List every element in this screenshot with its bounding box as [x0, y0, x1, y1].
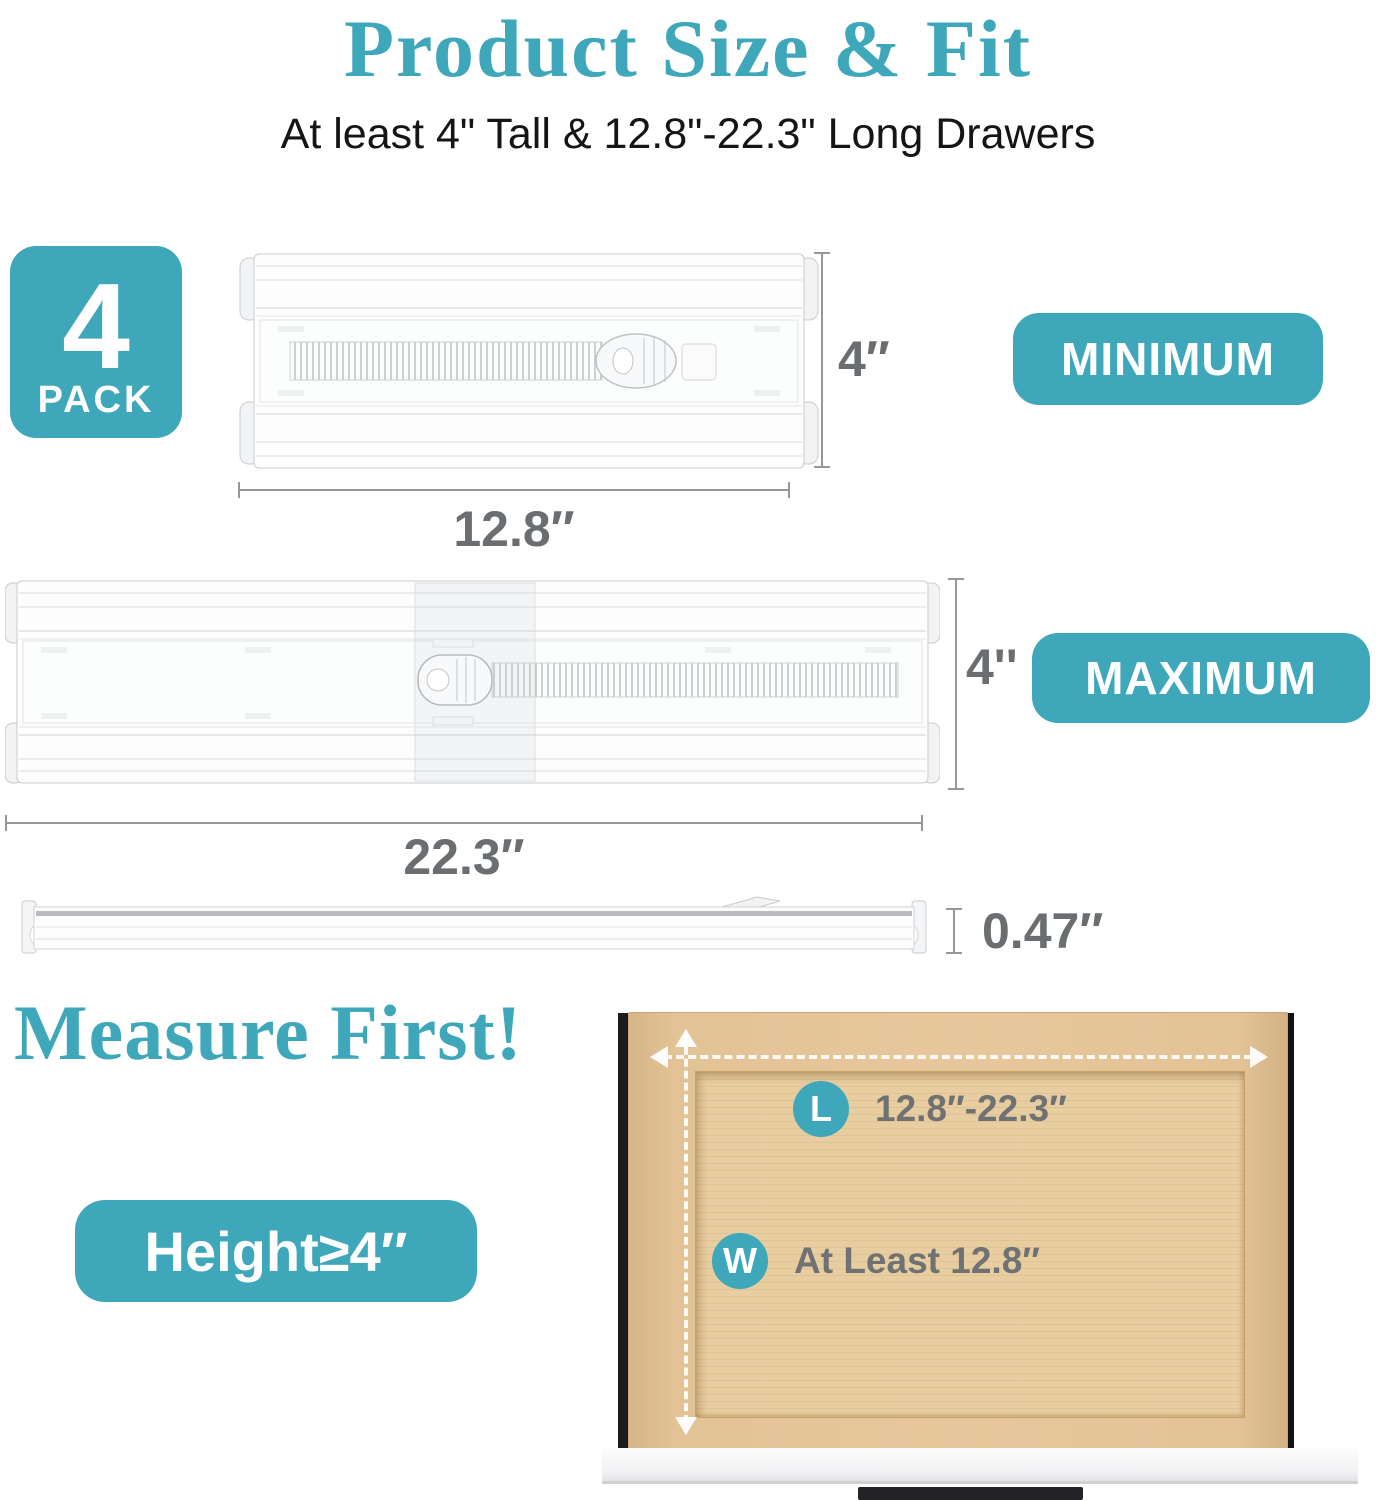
page-subtitle: At least 4" Tall & 12.8"-22.3" Long Draw…: [0, 110, 1376, 159]
width-marker-icon: W: [712, 1233, 768, 1289]
min-height-dimension-line: [814, 252, 830, 468]
length-arrow-line: [664, 1055, 1252, 1059]
length-range-text: 12.8″-22.3″: [875, 1088, 1067, 1130]
pack-count-badge: 4 PACK: [10, 246, 182, 438]
cabinet-shelf: [602, 1448, 1358, 1484]
minimum-badge: MINIMUM: [1013, 313, 1323, 405]
length-arrowhead-left-icon: [650, 1046, 668, 1068]
length-marker-row: L 12.8″-22.3″: [793, 1081, 1067, 1137]
pack-count-word: PACK: [38, 380, 155, 420]
product-size-fit-infographic: Product Size & Fit At least 4" Tall & 12…: [0, 0, 1376, 1500]
width-arrowhead-up-icon: [675, 1029, 697, 1047]
width-marker-row: W At Least 12.8″: [712, 1233, 1040, 1289]
max-length-label: 22.3″: [403, 828, 524, 886]
min-length-dimension-line: [238, 482, 790, 498]
max-height-label: 4'': [966, 638, 1018, 696]
height-requirement-badge: Height≥4″: [75, 1200, 477, 1302]
divider-maximum-illustration: [5, 575, 940, 790]
thickness-dimension-line: [946, 908, 962, 954]
drawer-handle: [858, 1487, 1083, 1500]
width-min-text: At Least 12.8″: [794, 1240, 1040, 1282]
length-marker-icon: L: [793, 1081, 849, 1137]
measure-first-heading: Measure First!: [14, 988, 523, 1078]
maximum-badge: MAXIMUM: [1032, 633, 1370, 723]
page-title: Product Size & Fit: [0, 2, 1376, 96]
divider-minimum-illustration: [238, 250, 820, 472]
width-arrow-line: [684, 1035, 688, 1423]
drawer-illustration: L 12.8″-22.3″ W At Least 12.8″: [600, 1005, 1376, 1500]
thickness-label: 0.47″: [982, 902, 1103, 960]
pack-count-number: 4: [62, 272, 130, 380]
min-height-label: 4″: [838, 330, 890, 388]
divider-side-view-illustration: [20, 893, 928, 960]
max-height-dimension-line: [948, 578, 964, 790]
min-length-label: 12.8″: [453, 500, 574, 558]
length-arrowhead-right-icon: [1250, 1046, 1268, 1068]
width-arrowhead-down-icon: [675, 1417, 697, 1435]
